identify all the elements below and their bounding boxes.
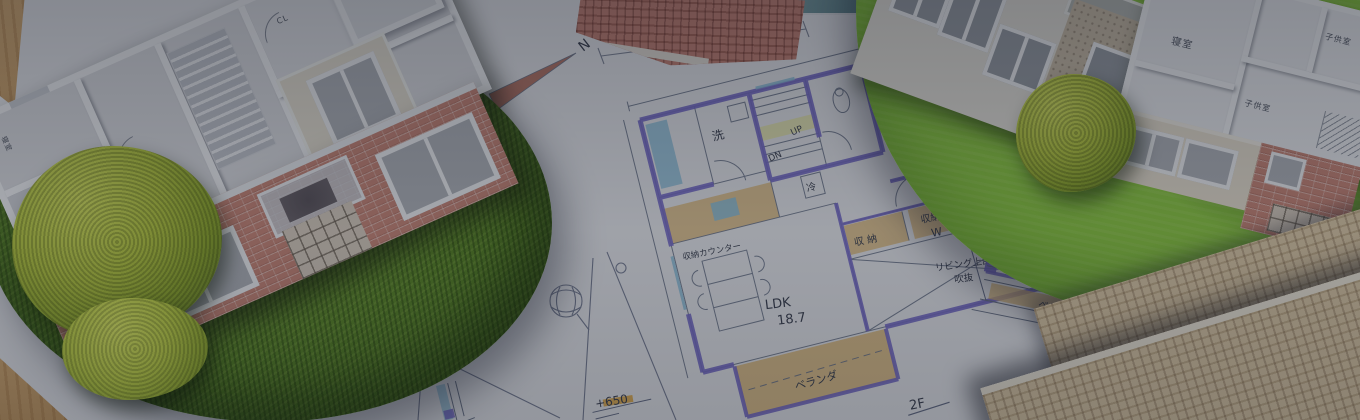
model-window: [1264, 151, 1307, 191]
model-wall: [1221, 0, 1264, 140]
window-mullion: [1145, 134, 1157, 166]
window-mullion: [1010, 37, 1029, 82]
right-model-kids-b-label: 子供室: [1243, 98, 1272, 115]
level-note: +650: [590, 388, 653, 419]
north-label: N: [576, 36, 594, 55]
plan-label-ldk-area: 18.7: [776, 310, 807, 328]
floor-2f-note: 2F: [905, 391, 950, 415]
hero-photo: N: [0, 0, 1360, 420]
window-mullion: [913, 0, 935, 17]
floor-2f-label: 2F: [908, 396, 926, 414]
plan-label-void2: 吹抜: [953, 271, 974, 286]
plan-label-dn: DN: [767, 150, 784, 165]
left-model-bedroom-label: 寝室: [0, 135, 14, 154]
window-mullion: [340, 70, 369, 128]
right-model-bedroom-label: 寝室: [1170, 32, 1195, 52]
model-window: [1177, 138, 1239, 190]
window-mullion: [962, 0, 984, 41]
plan-label-storage-counter: 収納カウンター: [682, 241, 743, 263]
model-wall: [1241, 55, 1360, 97]
right-model-kids-a-label: 子供室: [1324, 31, 1353, 48]
plan-label-wash: 洗: [711, 127, 726, 143]
window-mullion: [423, 137, 452, 195]
north-arrow: N: [489, 36, 594, 110]
model-wall: [1134, 60, 1234, 90]
bottom-fragment: [436, 379, 476, 420]
plan-label-fridge: 冷: [805, 180, 818, 195]
model-stairs: [1316, 111, 1360, 158]
plan-label-ldk: LDK: [764, 295, 792, 313]
